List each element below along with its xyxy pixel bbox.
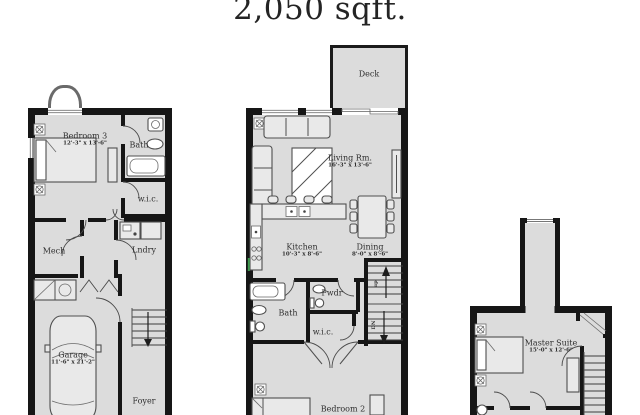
room-label-wic-main: w.i.c. [313, 327, 334, 336]
bathtub [250, 283, 285, 300]
dining-table [350, 196, 394, 238]
toilet [250, 321, 265, 332]
windows [262, 108, 398, 115]
room-label-master: Master Suite 15'-0" x 12'-6" [525, 338, 578, 354]
page-title: 2,050 sqft. [0, 0, 640, 27]
room-label-kitchen: Kitchen 10'-3" x 8'-6" [282, 242, 322, 258]
sink [252, 306, 266, 315]
lower-level-plan: Bedroom 3 12'-3" x 13'-6" Bath w.i.c. Me… [28, 108, 172, 415]
sofa [264, 116, 330, 138]
stairs-up-label: up [373, 280, 379, 287]
hall-extension [523, 218, 558, 311]
ceiling-fan-icon [34, 124, 45, 135]
room-label-bath-main: Bath [278, 308, 297, 317]
window-well [48, 85, 82, 110]
room-label-foyer: Foyer [132, 396, 155, 405]
toilet [148, 118, 163, 131]
washer-dryer [120, 222, 161, 239]
room-label-mech: Mech [43, 246, 66, 255]
lower-level-svg [28, 108, 172, 415]
room-label-bedroom3: Bedroom 3 12'-3" x 13'-6" [63, 131, 107, 147]
kitchen-counter [249, 204, 262, 271]
room-label-deck: Deck [359, 70, 379, 79]
room-label-living: Living Rm. 16'-3" x 13'-6" [328, 153, 372, 169]
room-label-wic-lower: w.i.c. [138, 194, 159, 203]
upper-level-svg [470, 218, 612, 415]
bathtub [127, 156, 165, 176]
toilet [310, 298, 324, 308]
room-label-dining: Dining 8'-0" x 8'-6" [352, 242, 388, 258]
ceiling-fan-icon [475, 324, 486, 335]
media-console [392, 150, 401, 198]
ceiling-fan-icon [255, 384, 266, 395]
ceiling-fan-icon [254, 118, 265, 129]
dresser [370, 395, 384, 415]
main-level-svg [246, 108, 408, 415]
dresser [108, 148, 117, 182]
stairs-dn-label: DN [371, 321, 377, 330]
room-label-bedroom2: Bedroom 2 [321, 404, 365, 413]
upper-level-plan: Master Suite 15'-0" x 12'-6" [470, 218, 612, 415]
main-level-plan: Living Rm. 16'-3" x 13'-6" Kitchen 10'-3… [246, 108, 408, 415]
room-label-pwdr: Pwdr [321, 288, 342, 297]
sink [147, 139, 163, 149]
floorplan-canvas: 2,050 sqft. [0, 0, 640, 415]
deck: Deck [330, 45, 408, 111]
toilet [477, 405, 487, 415]
ceiling-fan-icon [34, 184, 45, 195]
room-label-lndry: Lndry [132, 245, 156, 254]
room-label-garage: Garage 11'-6" x 21'-2" [51, 350, 95, 366]
bed [475, 337, 523, 373]
room-label-bath-lower: Bath [129, 140, 148, 149]
dresser [567, 358, 579, 392]
utility-sink [34, 280, 76, 300]
ceiling-fan-icon [475, 375, 486, 386]
bed [252, 398, 310, 415]
